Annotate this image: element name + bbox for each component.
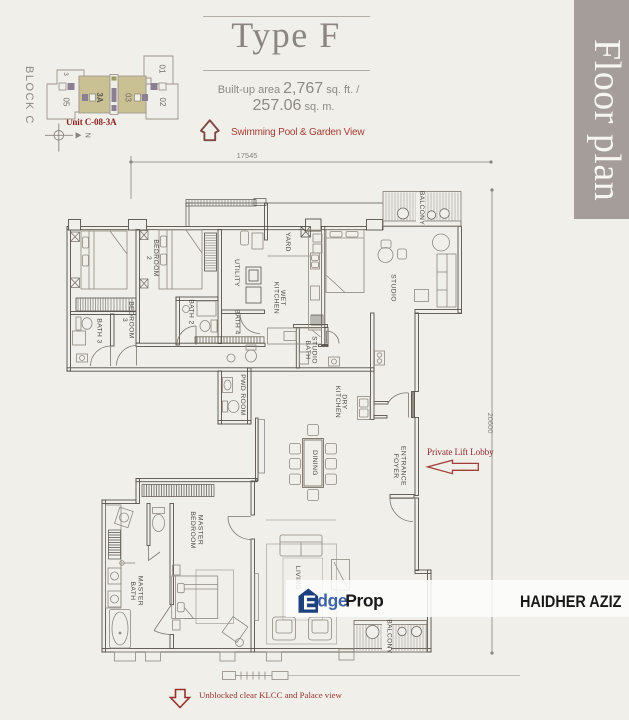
- svg-text:dge: dge: [317, 591, 348, 611]
- svg-text:17545: 17545: [237, 151, 258, 160]
- svg-text:3: 3: [121, 318, 128, 322]
- svg-text:03: 03: [124, 93, 133, 102]
- svg-text:YARD: YARD: [284, 232, 291, 252]
- svg-text:BATH: BATH: [304, 341, 311, 360]
- svg-text:BEDROOM: BEDROOM: [189, 511, 196, 548]
- svg-text:UTILITY: UTILITY: [233, 259, 240, 287]
- svg-text:02: 02: [158, 98, 167, 107]
- svg-text:Prop: Prop: [345, 591, 383, 611]
- svg-text:MASTER: MASTER: [137, 576, 144, 606]
- svg-text:KITCHEN: KITCHEN: [334, 386, 341, 418]
- svg-text:ENTRANCE: ENTRANCE: [400, 446, 407, 486]
- svg-text:3: 3: [62, 72, 68, 76]
- svg-text:KITCHEN: KITCHEN: [273, 282, 280, 314]
- svg-text:E: E: [303, 592, 317, 615]
- svg-text:BATH 3: BATH 3: [96, 318, 103, 343]
- svg-text:BATH 2: BATH 2: [188, 299, 195, 324]
- svg-text:05: 05: [62, 98, 71, 107]
- svg-text:BATH 4: BATH 4: [234, 309, 241, 334]
- svg-text:BALCONY: BALCONY: [386, 619, 393, 654]
- svg-text:BATH: BATH: [129, 582, 136, 601]
- svg-text:Private Lift Lobby: Private Lift Lobby: [427, 447, 494, 457]
- svg-text:BALCONY: BALCONY: [418, 191, 425, 226]
- svg-text:01: 01: [158, 65, 167, 74]
- svg-text:DINING: DINING: [311, 450, 318, 476]
- svg-text:2: 2: [145, 256, 152, 260]
- svg-text:PWD ROOM: PWD ROOM: [239, 374, 246, 415]
- svg-text:3A: 3A: [95, 92, 104, 102]
- svg-text:N: N: [84, 133, 91, 138]
- svg-text:STUDIO: STUDIO: [390, 274, 397, 302]
- svg-text:BEDROOM: BEDROOM: [152, 239, 159, 276]
- svg-text:MASTER: MASTER: [197, 515, 204, 545]
- svg-text:FOYER: FOYER: [392, 453, 399, 478]
- svg-text:20600: 20600: [486, 413, 495, 434]
